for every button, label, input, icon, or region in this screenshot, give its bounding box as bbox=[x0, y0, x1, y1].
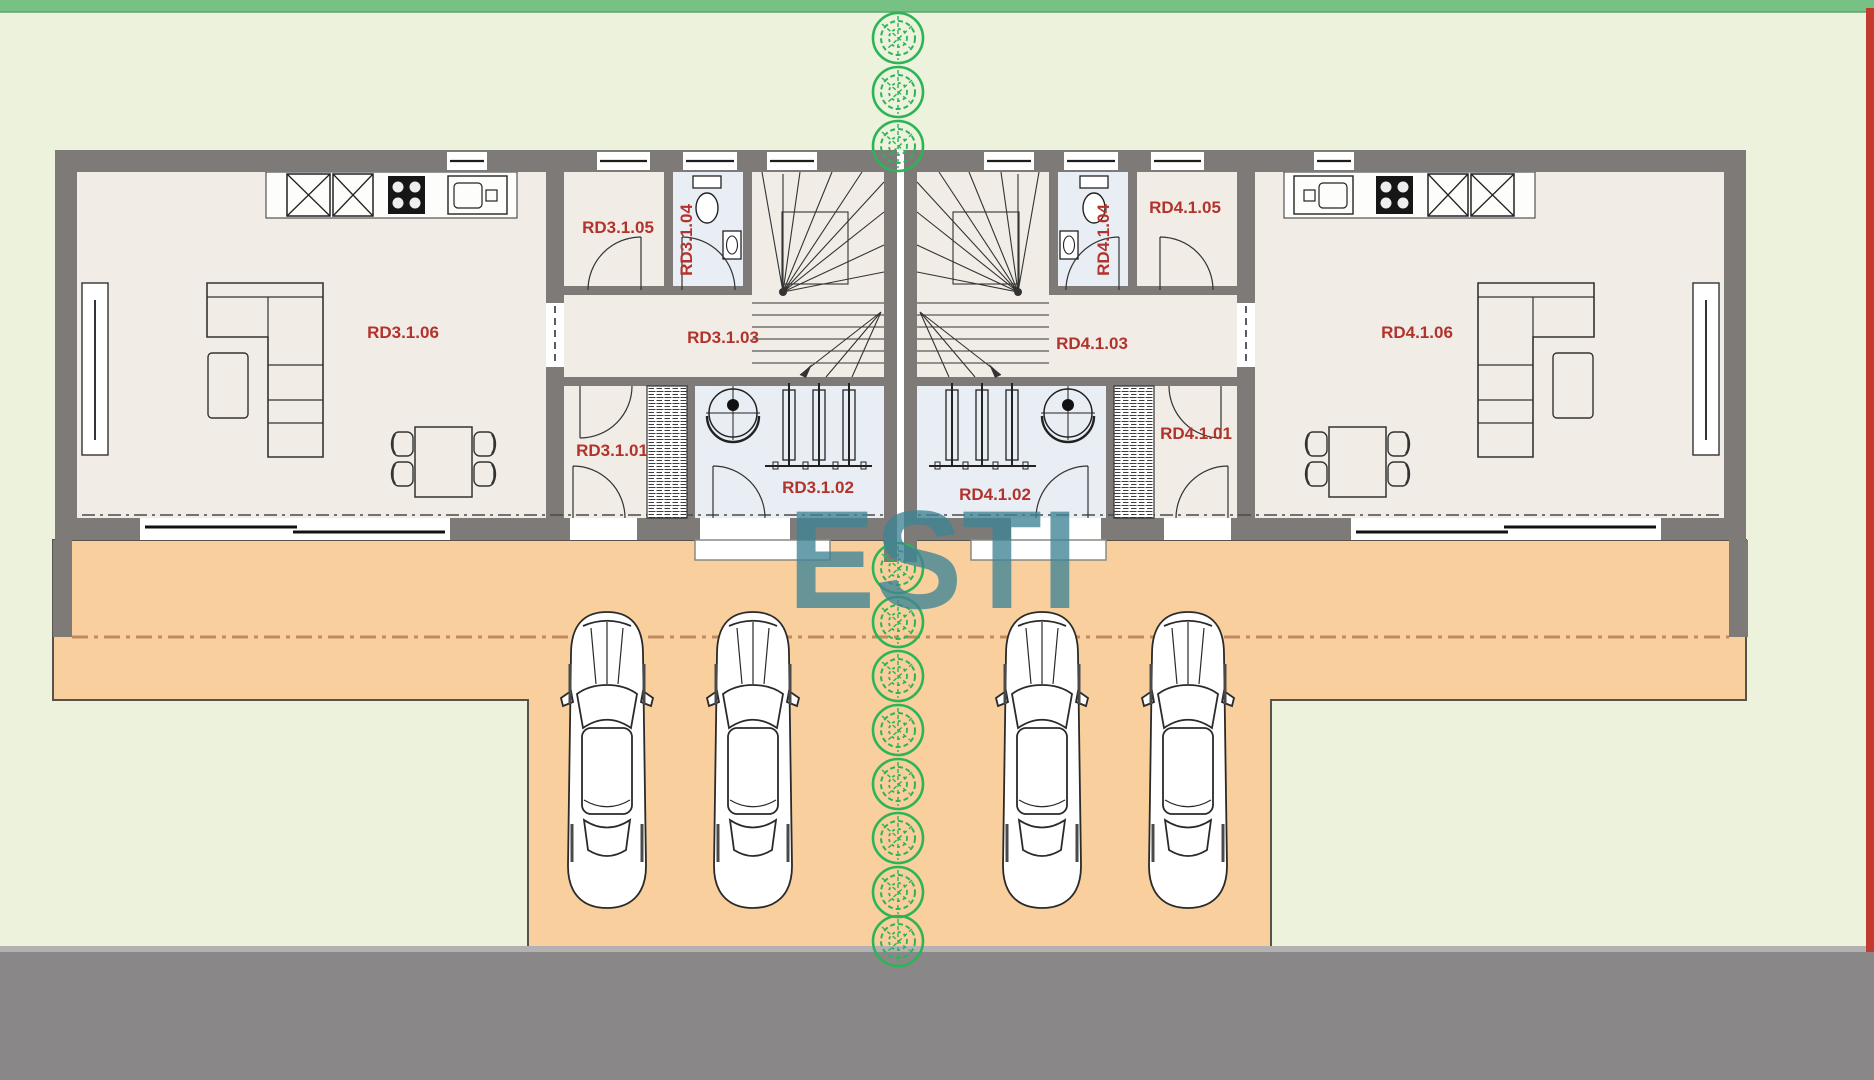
room-label-rd4-1-01: RD4.1.01 bbox=[1160, 424, 1232, 443]
site-boundary-red-line bbox=[1866, 8, 1874, 952]
site-plan-drawing: RD3.1.06 RD3.1.05 RD3.1.04 RD3.1.03 RD3.… bbox=[0, 0, 1874, 1080]
room-label-rd3-1-03: RD3.1.03 bbox=[687, 328, 759, 347]
esti-watermark: ESTI bbox=[788, 481, 1078, 638]
room-label-rd4-1-05: RD4.1.05 bbox=[1149, 198, 1221, 217]
room-label-rd3-1-06: RD3.1.06 bbox=[367, 323, 439, 342]
hedge-strip bbox=[0, 0, 1874, 12]
room-label-rd3-1-05: RD3.1.05 bbox=[582, 218, 654, 237]
room-label-rd3-1-01: RD3.1.01 bbox=[576, 441, 648, 460]
road bbox=[0, 952, 1874, 1080]
room-label-rd4-1-04: RD4.1.04 bbox=[1094, 204, 1113, 276]
room-label-rd3-1-04: RD3.1.04 bbox=[677, 204, 696, 276]
room-label-rd4-1-03: RD4.1.03 bbox=[1056, 334, 1128, 353]
floor-plan-canvas: RD3.1.06 RD3.1.05 RD3.1.04 RD3.1.03 RD3.… bbox=[0, 0, 1874, 1080]
room-label-rd4-1-06: RD4.1.06 bbox=[1381, 323, 1453, 342]
curb bbox=[0, 946, 1874, 952]
